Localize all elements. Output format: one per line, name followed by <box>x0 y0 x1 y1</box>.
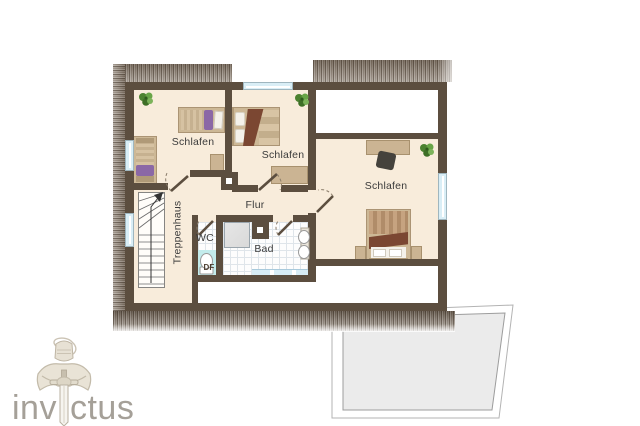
room-label-wc: WC <box>190 233 220 244</box>
room-label-stairwell: Treppenhaus <box>173 187 184 279</box>
floorplan-page: Schlafen Schlafen Schlafen Flur Treppenh… <box>0 0 640 426</box>
room-label-bedroom2: Schlafen <box>243 150 323 161</box>
room-label-roof-window: DF <box>194 262 224 273</box>
room-label-bathroom: Bad <box>239 244 289 255</box>
sinks <box>299 228 310 259</box>
room-label-bedroom1: Schlafen <box>153 137 233 148</box>
room-label-bedroom3: Schlafen <box>346 181 426 192</box>
logo-text-right: ctus <box>70 391 134 425</box>
logo-text-left: inv <box>12 391 57 425</box>
room-label-hallway: Flur <box>225 200 285 211</box>
logo-wordmark: inv ctus <box>12 391 134 425</box>
